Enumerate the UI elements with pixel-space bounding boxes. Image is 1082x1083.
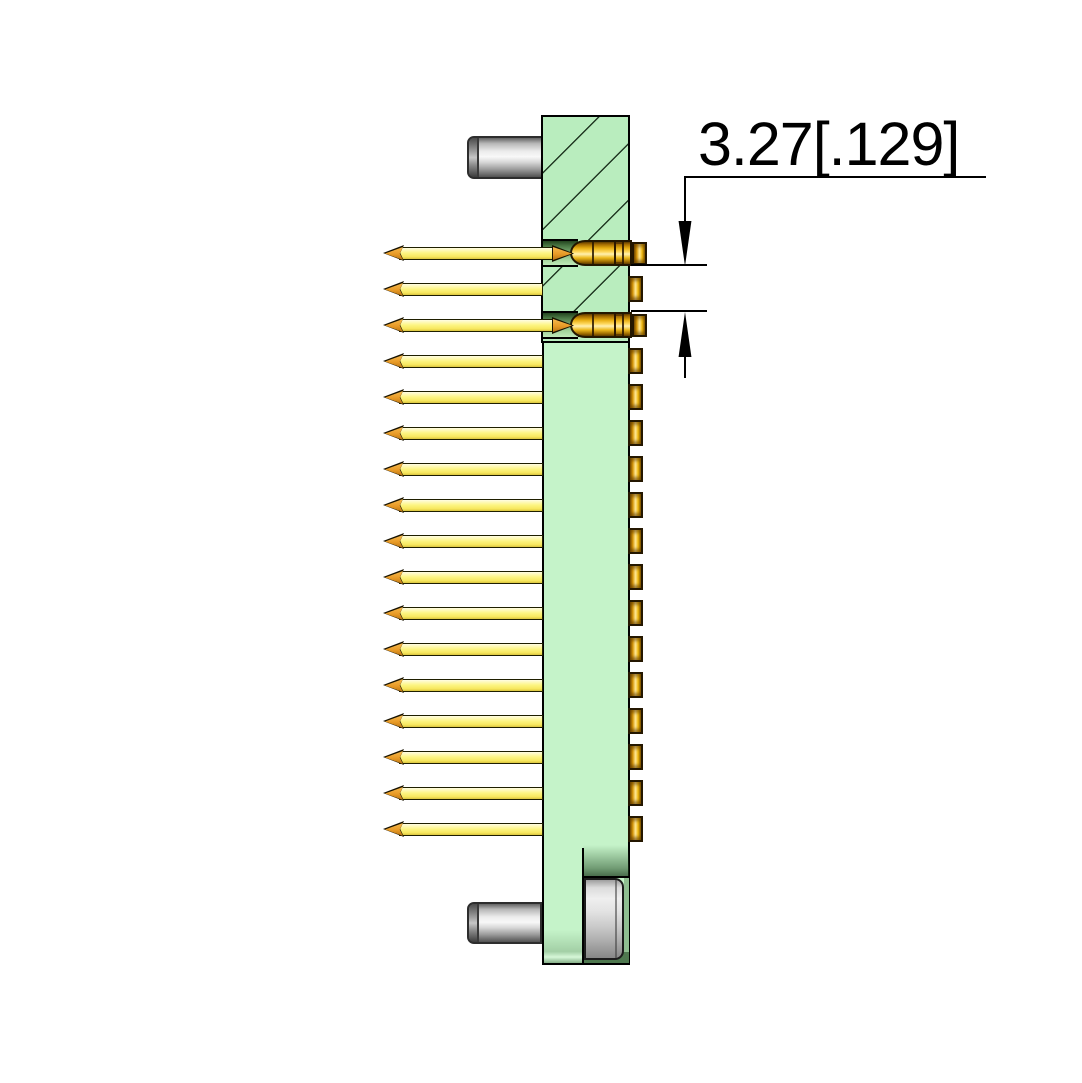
pin: [399, 607, 543, 620]
pin: [399, 247, 557, 260]
barrel-neck: [614, 314, 624, 336]
pin-tail: [628, 456, 643, 482]
pin-tail: [628, 744, 643, 770]
barrel-segment-line: [592, 314, 594, 336]
pin: [399, 319, 557, 332]
pin-tail: [632, 314, 647, 337]
dimension-extension-line-bottom: [631, 310, 707, 312]
pin-tail: [628, 348, 643, 374]
pin: [399, 643, 543, 656]
pin-tail: [628, 708, 643, 734]
dimension-arrow-stem: [684, 355, 686, 378]
pin: [399, 535, 543, 548]
dimension-label: 3.27[.129]: [698, 112, 988, 176]
dimension-extension-line-top: [631, 264, 707, 266]
pin: [399, 823, 543, 836]
pin-tail: [628, 564, 643, 590]
pin: [399, 715, 543, 728]
pin: [399, 463, 543, 476]
pin: [399, 355, 543, 368]
pin-tail: [628, 636, 643, 662]
pin: [399, 679, 543, 692]
barrel-neck: [614, 242, 624, 264]
pin-tail: [628, 600, 643, 626]
pin: [399, 787, 543, 800]
pin-tail: [628, 816, 643, 842]
pin: [399, 751, 543, 764]
pin-tail: [628, 672, 643, 698]
pin: [399, 499, 543, 512]
pin: [399, 427, 543, 440]
contact-barrel: [570, 240, 632, 266]
technical-drawing-canvas: 3.27[.129]: [0, 0, 1082, 1083]
pin-tail: [628, 276, 643, 302]
pin: [399, 571, 543, 584]
pin-tail: [628, 492, 643, 518]
dimension-leader-vertical: [684, 176, 686, 223]
pin-tail: [628, 528, 643, 554]
pin-tail: [632, 242, 647, 265]
pin: [399, 391, 543, 404]
pin-tail: [628, 384, 643, 410]
pin: [399, 283, 543, 296]
barrel-segment-line: [592, 242, 594, 264]
pin-tail: [628, 780, 643, 806]
contact-barrel: [570, 312, 632, 338]
pin-tail: [628, 420, 643, 446]
